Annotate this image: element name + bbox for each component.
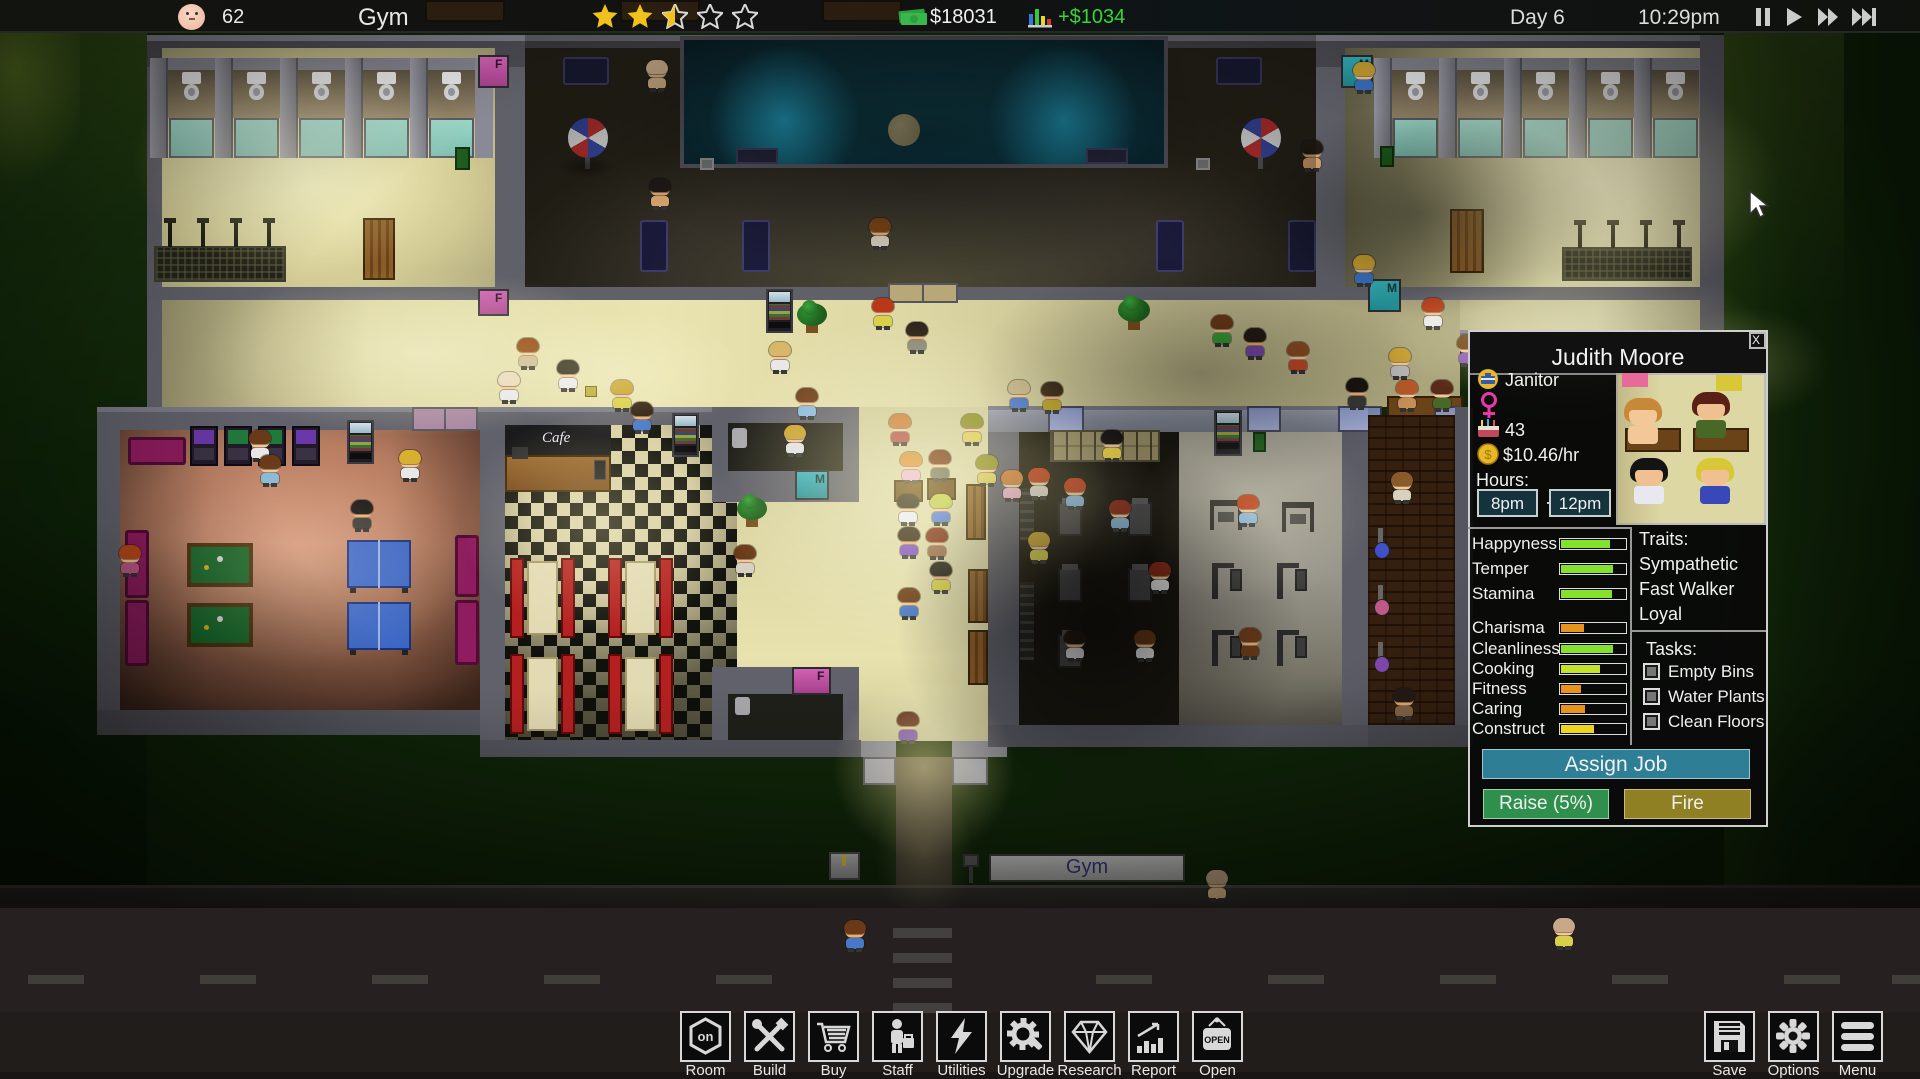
svg-text:OPEN: OPEN xyxy=(1204,1035,1230,1045)
svg-text:$: $ xyxy=(1484,447,1492,462)
svg-text:on: on xyxy=(698,1029,714,1044)
